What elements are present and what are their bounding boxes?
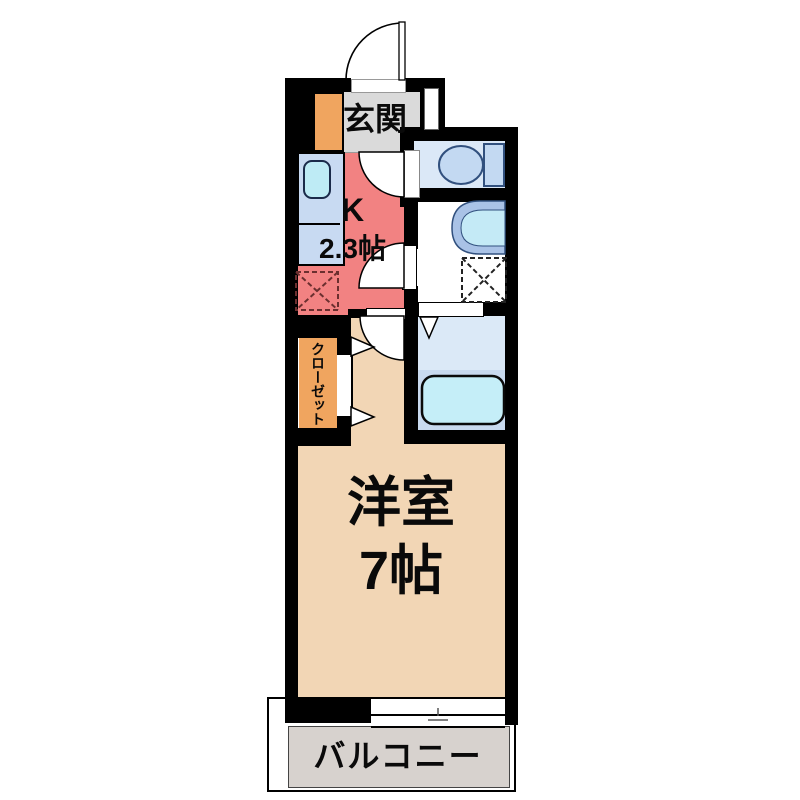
room-name: 洋室 <box>297 472 505 534</box>
door-leaf <box>366 308 406 320</box>
entrance-label: 玄関 <box>340 101 410 138</box>
balcony-label: バルコニー <box>288 738 508 775</box>
wall-segment <box>348 309 368 318</box>
wall-segment <box>285 80 315 152</box>
closet-label: クローゼット <box>299 342 337 426</box>
room-label: 洋室 7帖 <box>297 472 505 602</box>
wall-segment <box>400 127 518 141</box>
room-size-label: 7帖 <box>297 540 505 602</box>
bathroom-floor-upper <box>418 316 505 370</box>
entry-door-sill <box>351 79 406 93</box>
wall-segment <box>404 286 418 443</box>
wall-segment <box>505 127 518 725</box>
floorplan-canvas: 玄関 K 2.3帖 クローゼット 洋室 7帖 バルコニー <box>0 0 800 800</box>
kitchen-size-label: 2.3帖 <box>300 233 405 265</box>
wall-segment <box>337 315 351 355</box>
kitchen-label: K 2.3帖 <box>300 192 405 265</box>
bathroom-floor-lower <box>418 370 505 430</box>
entry-door-icon <box>346 22 405 80</box>
closet-door-icon <box>337 355 353 416</box>
door-leaf <box>404 150 420 198</box>
pipe-space <box>424 88 439 130</box>
wall-segment <box>285 698 371 723</box>
washroom-floor <box>418 202 505 302</box>
toilet-room-floor <box>413 140 505 188</box>
balcony-window <box>371 714 505 728</box>
corridor-floor <box>351 316 404 446</box>
wall-segment <box>404 430 518 444</box>
wall-segment <box>285 428 351 446</box>
kitchen-name: K <box>300 192 405 229</box>
wall-segment <box>482 302 505 316</box>
wall-segment <box>404 195 418 249</box>
bath-door-icon <box>418 302 484 317</box>
